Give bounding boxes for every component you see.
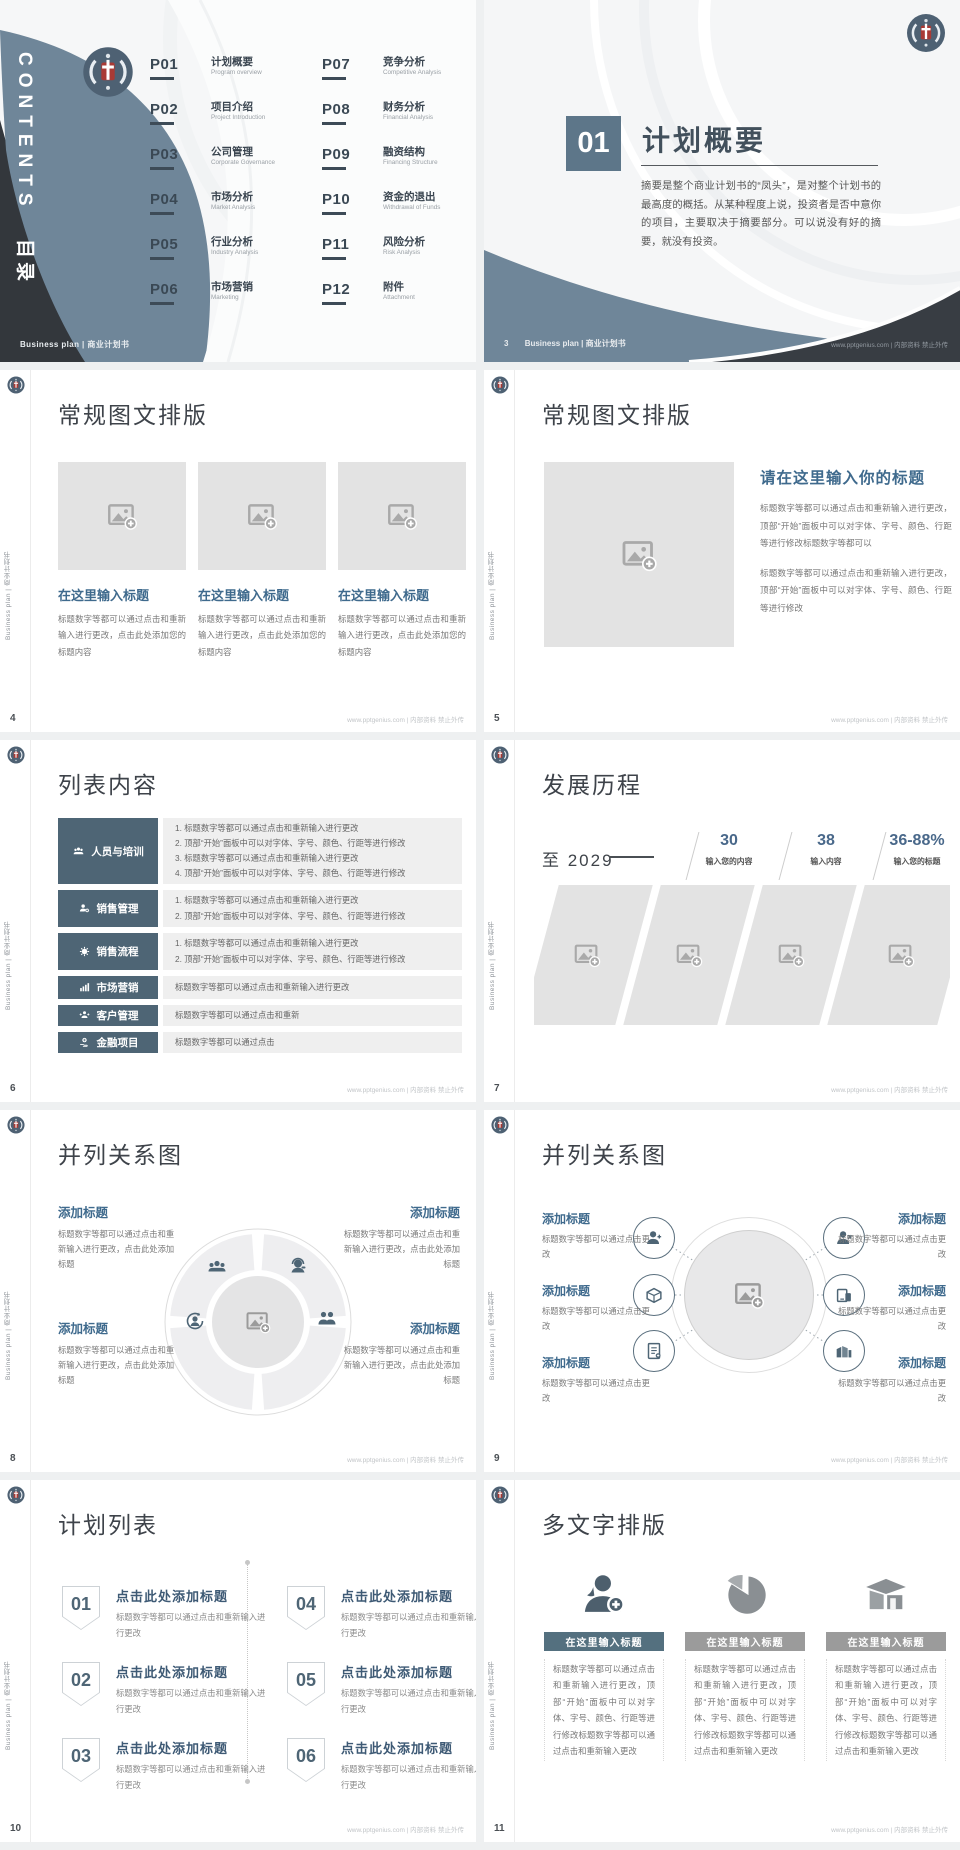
list-row: 人员与培训 1. 标题数字等都可以通过点击和重新输入进行更改 2. 顶部“开始”…: [58, 818, 462, 884]
item-body: 标题数字等都可以通过点击和重新输入进行更改: [341, 1762, 476, 1794]
number-badge: 04: [287, 1586, 325, 1630]
category-label: 市场营销: [97, 980, 139, 995]
toc-underline: [322, 302, 346, 305]
toc-label-en: Industry Analysis: [211, 249, 258, 256]
cover-vertical-title: CONTENTS 目录: [13, 52, 40, 342]
list-category[interactable]: 人员与培训: [58, 818, 158, 884]
category-label: 金融项目: [97, 1035, 139, 1050]
list-line: 3. 标题数字等都可以通过点击和重新输入进行更改: [175, 851, 450, 866]
university-emblem-icon: [7, 376, 25, 394]
badge-number: 03: [63, 1739, 99, 1781]
image-plus-icon: [572, 940, 602, 970]
slide-timeline: Business plan | 商业计划书 发展历程 至 2029 30 输入您…: [484, 740, 960, 1102]
list-lines: 标题数字等都可以通过点击: [163, 1032, 462, 1053]
block-heading: 添加标题: [58, 1318, 180, 1337]
text-block: 请在这里输入你的标题 标题数字等都可以通过点击和重新输入进行更改，顶部“开始”面…: [760, 466, 952, 618]
toc-label-zh: 计划概要: [211, 56, 262, 68]
toc-label-en: Project Introduction: [211, 114, 265, 121]
badge-number: 02: [63, 1663, 99, 1705]
toc-item[interactable]: P03公司管理Corporate Governance: [150, 146, 310, 175]
list-lines: 标题数字等都可以通过点击和重新: [163, 1005, 462, 1026]
toc-label-en: Program overview: [211, 69, 262, 76]
column-heading: 在这里输入标题: [58, 585, 186, 604]
block-heading: 添加标题: [338, 1318, 460, 1337]
sidebar-divider: [514, 1110, 515, 1472]
hub-block: 添加标题 标题数字等都可以通过点击更改: [836, 1210, 946, 1262]
toc-label-zh: 风险分析: [383, 236, 425, 248]
footer-watermark: www.pptgenius.com | 内部资料 禁止外传: [347, 1824, 464, 1834]
block-heading: 添加标题: [836, 1282, 946, 1299]
image-placeholder[interactable]: [338, 462, 466, 570]
toc-label-en: Financial Analysis: [383, 114, 433, 121]
toc-number: P04: [150, 191, 178, 208]
footer-watermark: www.pptgenius.com | 内部资料 禁止外传: [831, 714, 948, 724]
toc-number: P08: [322, 101, 350, 118]
list-line: 2. 顶部“开始”面板中可以对字体、字号、颜色、行距等进行修改: [175, 909, 450, 924]
footer-brand: Business plan | 商业计划书: [525, 339, 626, 348]
column-title-bar: 在这里输入标题: [685, 1632, 805, 1651]
university-emblem-icon: [491, 746, 509, 764]
list-line: 2. 顶部“开始”面板中可以对字体、字号、颜色、行距等进行修改: [175, 836, 450, 851]
slide-cover-contents: CONTENTS 目录 P01计划概要Program overview P02项…: [0, 0, 476, 362]
page-number: 3: [504, 339, 508, 348]
image-placeholder[interactable]: [198, 462, 326, 570]
block-body: 标题数字等都可以通过点击和重新输入进行更改，点击此处添加标题: [338, 1343, 460, 1388]
item-heading: 点击此处添加标题: [341, 1738, 476, 1757]
toc-underline: [322, 167, 346, 170]
cover-title-en: CONTENTS: [14, 52, 35, 213]
item-body: 标题数字等都可以通过点击和重新输入进行更改: [116, 1610, 272, 1642]
section-footer-left: 3 Business plan | 商业计划书: [504, 338, 640, 349]
list-line: 1. 标题数字等都可以通过点击和重新输入进行更改: [175, 893, 450, 908]
plan-item: 05 点击此处添加标题标题数字等都可以通过点击和重新输入进行更改: [287, 1662, 476, 1718]
timeline-stat: 38 输入内容: [781, 832, 871, 867]
slide-title: 计划列表: [58, 1506, 158, 1540]
image-plus-icon: [886, 940, 916, 970]
item-heading: 点击此处添加标题: [116, 1738, 272, 1757]
toc-column-right: P07竞争分析Competitive Analysis P08财务分析Finan…: [322, 56, 476, 326]
timeline-era-label: 至 2029: [542, 846, 614, 871]
sidebar-divider: [514, 370, 515, 732]
toc-item[interactable]: P04市场分析Market Analysis: [150, 191, 310, 220]
image-text-column: 在这里输入标题 标题数字等都可以通过点击和重新输入进行更改，点击此处添加您的标题…: [338, 462, 466, 660]
item-heading: 点击此处添加标题: [116, 1662, 272, 1681]
list-row: 客户管理 标题数字等都可以通过点击和重新: [58, 1005, 462, 1026]
column-heading: 在这里输入标题: [338, 585, 466, 604]
text-column: 在这里输入标题 标题数字等都可以通过点击和重新输入进行更改，顶部“开始”面板中可…: [826, 1558, 946, 1761]
toc-number: P07: [322, 56, 350, 73]
timeline-stat: 36-88% 输入您的标题: [872, 832, 960, 867]
list-category[interactable]: 金融项目: [58, 1032, 158, 1053]
list-line: 2. 顶部“开始”面板中可以对字体、字号、颜色、行距等进行修改: [175, 952, 450, 967]
number-badge: 05: [287, 1662, 325, 1706]
toc-label-en: Competitive Analysis: [383, 69, 441, 76]
list-line: 1. 标题数字等都可以通过点击和重新输入进行更改: [175, 821, 450, 836]
toc-label-zh: 行业分析: [211, 236, 258, 248]
badge-number: 04: [288, 1587, 324, 1629]
number-badge: 01: [62, 1586, 100, 1630]
item-body: 标题数字等都可以通过点击和重新输入进行更改: [116, 1686, 272, 1718]
category-label: 人员与培训: [91, 844, 144, 859]
sidebar-watermark: Business plan | 商业计划书: [4, 860, 14, 1010]
column-title-bar: 在这里输入标题: [826, 1632, 946, 1651]
block-body: 标题数字等都可以通过点击更改: [836, 1304, 946, 1334]
cover-title-zh: 目录: [14, 239, 35, 285]
sidebar-watermark: Business plan | 商业计划书: [488, 1230, 498, 1380]
column-body: 标题数字等都可以通过点击和重新输入进行更改，点击此处添加您的标题内容: [338, 611, 466, 660]
column-body: 标题数字等都可以通过点击和重新输入进行更改，顶部“开始”面板中可以对字体、字号、…: [685, 1659, 805, 1761]
footer-watermark: www.pptgenius.com | 内部资料 禁止外传: [831, 339, 948, 349]
toc-number: P11: [322, 236, 349, 253]
sidebar-watermark: Business plan | 商业计划书: [4, 490, 14, 640]
column-body: 标题数字等都可以通过点击和重新输入进行更改，点击此处添加您的标题内容: [198, 611, 326, 660]
list-line: 标题数字等都可以通过点击和重新输入进行更改: [175, 980, 450, 995]
page-number: 8: [10, 1453, 16, 1464]
toc-label-zh: 市场营销: [211, 281, 253, 293]
column-heading: 在这里输入标题: [198, 585, 326, 604]
page-number: 5: [494, 713, 500, 724]
page-number: 6: [10, 1083, 16, 1094]
list-row: 销售管理 1. 标题数字等都可以通过点击和重新输入进行更改 2. 顶部“开始”面…: [58, 890, 462, 927]
toc-underline: [150, 257, 174, 260]
list-lines: 1. 标题数字等都可以通过点击和重新输入进行更改 2. 顶部“开始”面板中可以对…: [163, 933, 462, 970]
hub-block: 添加标题 标题数字等都可以通过点击更改: [542, 1282, 652, 1334]
university-emblem-icon: [7, 1486, 25, 1504]
consultant-icon: [577, 1568, 631, 1622]
list-row: 金融项目 标题数字等都可以通过点击: [58, 1032, 462, 1053]
toc-item[interactable]: P05行业分析Industry Analysis: [150, 236, 310, 265]
page-number: 7: [494, 1083, 500, 1094]
column-body: 标题数字等都可以通过点击和重新输入进行更改，顶部“开始”面板中可以对字体、字号、…: [826, 1659, 946, 1761]
toc-underline: [150, 212, 174, 215]
toc-underline: [322, 122, 346, 125]
item-body: 标题数字等都可以通过点击和重新输入进行更改: [116, 1762, 272, 1794]
toc-label-en: Withdrawal of Funds: [383, 204, 440, 211]
badge-number: 06: [288, 1739, 324, 1781]
block-heading: 添加标题: [836, 1210, 946, 1227]
toc-label-zh: 项目介绍: [211, 101, 265, 113]
bar-chart-icon: [78, 981, 91, 994]
block-body: 标题数字等都可以通过点击更改: [836, 1232, 946, 1262]
toc-label-en: Risk Analysis: [383, 249, 425, 256]
toc-label-en: Attachment: [383, 294, 415, 301]
toc-underline: [322, 257, 346, 260]
toc-item[interactable]: P02项目介绍Project Introduction: [150, 101, 310, 130]
toc-item[interactable]: P09融资结构Financing Structure: [322, 146, 476, 175]
plan-item: 01 点击此处添加标题标题数字等都可以通过点击和重新输入进行更改: [62, 1586, 272, 1642]
sidebar-watermark: Business plan | 商业计划书: [488, 490, 498, 640]
toc-column-left: P01计划概要Program overview P02项目介绍Project I…: [150, 56, 310, 326]
block-paragraph-1: 标题数字等都可以通过点击和重新输入进行更改，顶部“开始”面板中可以对字体、字号、…: [760, 500, 952, 553]
toc-item[interactable]: P12附件Attachment: [322, 281, 476, 310]
badge-number: 05: [288, 1663, 324, 1705]
toc-underline: [150, 122, 174, 125]
timeline-stat: 30 输入您的内容: [684, 832, 774, 867]
footer-watermark: www.pptgenius.com | 内部资料 禁止外传: [831, 1454, 948, 1464]
plan-item: 03 点击此处添加标题标题数字等都可以通过点击和重新输入进行更改: [62, 1738, 272, 1794]
list-lines: 1. 标题数字等都可以通过点击和重新输入进行更改 2. 顶部“开始”面板中可以对…: [163, 890, 462, 927]
sidebar-watermark: Business plan | 商业计划书: [4, 1600, 14, 1750]
slide-title: 列表内容: [58, 766, 158, 800]
stat-label: 输入内容: [781, 856, 871, 867]
toc-label-zh: 资金的退出: [383, 191, 440, 203]
university-emblem-icon: [491, 376, 509, 394]
item-body: 标题数字等都可以通过点击和重新输入进行更改: [341, 1686, 476, 1718]
image-plus-icon: [245, 499, 279, 533]
toc-item[interactable]: P08财务分析Financial Analysis: [322, 101, 476, 130]
era-dash: [609, 856, 654, 858]
toc-label-zh: 市场分析: [211, 191, 255, 203]
column-body: 标题数字等都可以通过点击和重新输入进行更改，点击此处添加您的标题内容: [58, 611, 186, 660]
slide-image-text-three: Business plan | 商业计划书 常规图文排版 在这里输入标题 标题数…: [0, 370, 476, 732]
stat-value: 30: [720, 832, 738, 849]
sidebar-watermark: Business plan | 商业计划书: [4, 1230, 14, 1380]
section-number-badge: 01: [566, 116, 621, 171]
toc-number: P06: [150, 281, 178, 298]
block-body: 标题数字等都可以通过点击更改: [542, 1232, 652, 1262]
block-heading: 添加标题: [58, 1202, 180, 1221]
university-emblem-icon: [82, 46, 134, 98]
toc-number: P03: [150, 146, 178, 163]
university-emblem-icon: [491, 1486, 509, 1504]
pie-chart-icon: [717, 1566, 773, 1622]
toc-number: P02: [150, 101, 178, 118]
category-label: 销售管理: [97, 901, 139, 916]
image-plus-icon: [619, 535, 659, 575]
image-placeholder[interactable]: [58, 462, 186, 570]
slide-list-content: Business plan | 商业计划书 列表内容 人员与培训 1. 标题数字…: [0, 740, 476, 1102]
toc-number: P01: [150, 56, 178, 73]
block-heading: 添加标题: [836, 1354, 946, 1371]
sidebar-divider: [30, 740, 31, 1102]
section-summary: 摘要是整个商业计划书的“凤头”，是对整个计划书的最高度的概括。从某种程度上说，投…: [641, 178, 881, 253]
university-emblem-icon: [491, 1116, 509, 1134]
customers-icon: [78, 1009, 91, 1022]
slide-image-text-single: Business plan | 商业计划书 常规图文排版 请在这里输入你的标题 …: [484, 370, 960, 732]
image-plus-icon: [674, 940, 704, 970]
item-body: 标题数字等都可以通过点击和重新输入进行更改: [341, 1610, 476, 1642]
footer-watermark: www.pptgenius.com | 内部资料 禁止外传: [347, 1084, 464, 1094]
toc-item[interactable]: P10资金的退出Withdrawal of Funds: [322, 191, 476, 220]
university-emblem-icon: [906, 13, 946, 53]
block-body: 标题数字等都可以通过点击和重新输入进行更改，点击此处添加标题: [338, 1227, 460, 1272]
relation-block: 添加标题 标题数字等都可以通过点击和重新输入进行更改，点击此处添加标题: [338, 1318, 460, 1388]
sidebar-divider: [514, 1480, 515, 1842]
block-heading: 添加标题: [542, 1282, 652, 1299]
toc-underline: [150, 167, 174, 170]
sidebar-watermark: Business plan | 商业计划书: [488, 860, 498, 1010]
block-body: 标题数字等都可以通过点击更改: [542, 1304, 652, 1334]
number-badge: 02: [62, 1662, 100, 1706]
toc-label-en: Financing Structure: [383, 159, 438, 166]
relation-block: 添加标题 标题数字等都可以通过点击和重新输入进行更改，点击此处添加标题: [58, 1202, 180, 1272]
list-category[interactable]: 销售管理: [58, 890, 158, 927]
page-number: 9: [494, 1453, 500, 1464]
list-lines: 1. 标题数字等都可以通过点击和重新输入进行更改 2. 顶部“开始”面板中可以对…: [163, 818, 462, 884]
category-label: 销售流程: [97, 944, 139, 959]
image-placeholder[interactable]: [544, 462, 734, 647]
block-heading: 添加标题: [542, 1210, 652, 1227]
users-icon: [72, 845, 85, 858]
toc-number: P10: [322, 191, 350, 208]
toc-item[interactable]: P11风险分析Risk Analysis: [322, 236, 476, 265]
relation-block: 添加标题 标题数字等都可以通过点击和重新输入进行更改，点击此处添加标题: [338, 1202, 460, 1272]
toc-label-zh: 公司管理: [211, 146, 275, 158]
toc-label-zh: 竞争分析: [383, 56, 441, 68]
list-line: 标题数字等都可以通过点击: [175, 1035, 450, 1050]
toc-label-en: Marketing: [211, 294, 253, 301]
slide-title: 多文字排版: [542, 1506, 667, 1540]
toc-item[interactable]: P07竞争分析Competitive Analysis: [322, 56, 476, 85]
list-lines: 标题数字等都可以通过点击和重新输入进行更改: [163, 976, 462, 999]
toc-number: P12: [322, 281, 350, 298]
toc-underline: [322, 212, 346, 215]
toc-label-zh: 附件: [383, 281, 415, 293]
slide-plan-list: Business plan | 商业计划书 计划列表 01 点击此处添加标题标题…: [0, 1480, 476, 1842]
toc-item[interactable]: P01计划概要Program overview: [150, 56, 310, 85]
text-column: 在这里输入标题 标题数字等都可以通过点击和重新输入进行更改，顶部“开始”面板中可…: [544, 1558, 664, 1761]
footer-watermark: www.pptgenius.com | 内部资料 禁止外传: [347, 1454, 464, 1464]
toc-label-en: Market Analysis: [211, 204, 255, 211]
image-plus-icon: [105, 499, 139, 533]
block-heading: 添加标题: [542, 1354, 652, 1371]
block-body: 标题数字等都可以通过点击更改: [542, 1376, 652, 1406]
plan-item: 06 点击此处添加标题标题数字等都可以通过点击和重新输入进行更改: [287, 1738, 476, 1794]
stat-value: 36-88%: [889, 832, 944, 849]
image-plus-icon: [776, 940, 806, 970]
sidebar-divider: [514, 740, 515, 1102]
footer-watermark: www.pptgenius.com | 内部资料 禁止外传: [831, 1824, 948, 1834]
page-number: 10: [10, 1823, 21, 1834]
column-title-bar: 在这里输入标题: [544, 1632, 664, 1651]
gear-icon: [78, 945, 91, 958]
toc-number: P09: [322, 146, 350, 163]
block-body: 标题数字等都可以通过点击和重新输入进行更改，点击此处添加标题: [58, 1343, 180, 1388]
timeline-image-strip: [534, 885, 950, 1025]
sidebar-divider: [30, 1110, 31, 1472]
hub-block: 添加标题 标题数字等都可以通过点击更改: [836, 1354, 946, 1406]
item-heading: 点击此处添加标题: [341, 1586, 476, 1605]
stat-label: 输入您的内容: [684, 856, 774, 867]
image-plus-icon: [732, 1278, 766, 1312]
image-plus-icon: [385, 499, 419, 533]
item-heading: 点击此处添加标题: [341, 1662, 476, 1681]
slide-title: 并列关系图: [542, 1136, 667, 1170]
template-preview-sheet: CONTENTS 目录 P01计划概要Program overview P02项…: [0, 0, 960, 1850]
toc-underline: [150, 302, 174, 305]
toc-label-zh: 财务分析: [383, 101, 433, 113]
slide-multi-text: Business plan | 商业计划书 多文字排版 在这里输入标题 标题数字…: [484, 1480, 960, 1842]
item-heading: 点击此处添加标题: [116, 1586, 272, 1605]
hub-block: 添加标题 标题数字等都可以通过点击更改: [836, 1282, 946, 1334]
number-badge: 06: [287, 1738, 325, 1782]
page-number: 11: [494, 1823, 505, 1834]
stat-label: 输入您的标题: [872, 856, 960, 867]
toc-underline: [322, 77, 346, 80]
list-row: 销售流程 1. 标题数字等都可以通过点击和重新输入进行更改 2. 顶部“开始”面…: [58, 933, 462, 970]
slide-title: 并列关系图: [58, 1136, 183, 1170]
stat-value: 38: [817, 832, 835, 849]
user-gear-icon: [78, 902, 91, 915]
block-body: 标题数字等都可以通过点击更改: [836, 1376, 946, 1406]
title-rule: [641, 165, 878, 166]
number-badge: 03: [62, 1738, 100, 1782]
slide-title: 常规图文排版: [58, 396, 208, 430]
relation-wheel-diagram: [158, 1222, 358, 1422]
relation-block: 添加标题 标题数字等都可以通过点击和重新输入进行更改，点击此处添加标题: [58, 1318, 180, 1388]
slide-section-header: 01 计划概要 摘要是整个商业计划书的“凤头”，是对整个计划书的最高度的概括。从…: [484, 0, 960, 362]
store-icon: [858, 1566, 914, 1622]
list-category[interactable]: 销售流程: [58, 933, 158, 970]
list-row: 市场营销 标题数字等都可以通过点击和重新输入进行更改: [58, 976, 462, 999]
block-heading: 请在这里输入你的标题: [760, 466, 952, 488]
list-line: 1. 标题数字等都可以通过点击和重新输入进行更改: [175, 936, 450, 951]
slide-title: 发展历程: [542, 766, 642, 800]
block-body: 标题数字等都可以通过点击和重新输入进行更改，点击此处添加标题: [58, 1227, 180, 1272]
list-line: 标题数字等都可以通过点击和重新: [175, 1008, 450, 1023]
sidebar-watermark: Business plan | 商业计划书: [488, 1600, 498, 1750]
toc-label-zh: 融资结构: [383, 146, 438, 158]
image-text-column: 在这里输入标题 标题数字等都可以通过点击和重新输入进行更改，点击此处添加您的标题…: [198, 462, 326, 660]
block-heading: 添加标题: [338, 1202, 460, 1221]
list-category[interactable]: 客户管理: [58, 1005, 158, 1026]
plan-item: 02 点击此处添加标题标题数字等都可以通过点击和重新输入进行更改: [62, 1662, 272, 1718]
slide-relation-wheel: Business plan | 商业计划书 并列关系图 添加标题 标题数字等都可…: [0, 1110, 476, 1472]
slide-title: 常规图文排版: [542, 396, 692, 430]
block-paragraph-2: 标题数字等都可以通过点击和重新输入进行更改，顶部“开始”面板中可以对字体、字号、…: [760, 565, 952, 618]
image-text-column: 在这里输入标题 标题数字等都可以通过点击和重新输入进行更改，点击此处添加您的标题…: [58, 462, 186, 660]
footer-watermark: www.pptgenius.com | 内部资料 禁止外传: [347, 714, 464, 724]
finance-icon: [78, 1036, 91, 1049]
sidebar-divider: [30, 1480, 31, 1842]
column-body: 标题数字等都可以通过点击和重新输入进行更改，顶部“开始”面板中可以对字体、字号、…: [544, 1659, 664, 1761]
university-emblem-icon: [7, 746, 25, 764]
toc-underline: [150, 77, 174, 80]
toc-number: P05: [150, 236, 178, 253]
hub-block: 添加标题 标题数字等都可以通过点击更改: [542, 1210, 652, 1262]
section-title: 计划概要: [642, 119, 766, 159]
badge-number: 01: [63, 1587, 99, 1629]
hub-block: 添加标题 标题数字等都可以通过点击更改: [542, 1354, 652, 1406]
slide-relation-hub: Business plan | 商业计划书 并列关系图 添加标题 标题数字等都可…: [484, 1110, 960, 1472]
cover-footer: Business plan | 商业计划书: [20, 339, 129, 350]
hub-image-placeholder[interactable]: [684, 1230, 814, 1360]
footer-watermark: www.pptgenius.com | 内部资料 禁止外传: [831, 1084, 948, 1094]
list-line: 4. 顶部“开始”面板中可以对字体、字号、颜色、行距等进行修改: [175, 866, 450, 881]
category-label: 客户管理: [97, 1008, 139, 1023]
toc-label-en: Corporate Governance: [211, 159, 275, 166]
page-number: 4: [10, 713, 16, 724]
list-category[interactable]: 市场营销: [58, 976, 158, 999]
plan-item: 04 点击此处添加标题标题数字等都可以通过点击和重新输入进行更改: [287, 1586, 476, 1642]
toc-item[interactable]: P06市场营销Marketing: [150, 281, 310, 310]
sidebar-divider: [30, 370, 31, 732]
university-emblem-icon: [7, 1116, 25, 1134]
text-column: 在这里输入标题 标题数字等都可以通过点击和重新输入进行更改，顶部“开始”面板中可…: [685, 1558, 805, 1761]
